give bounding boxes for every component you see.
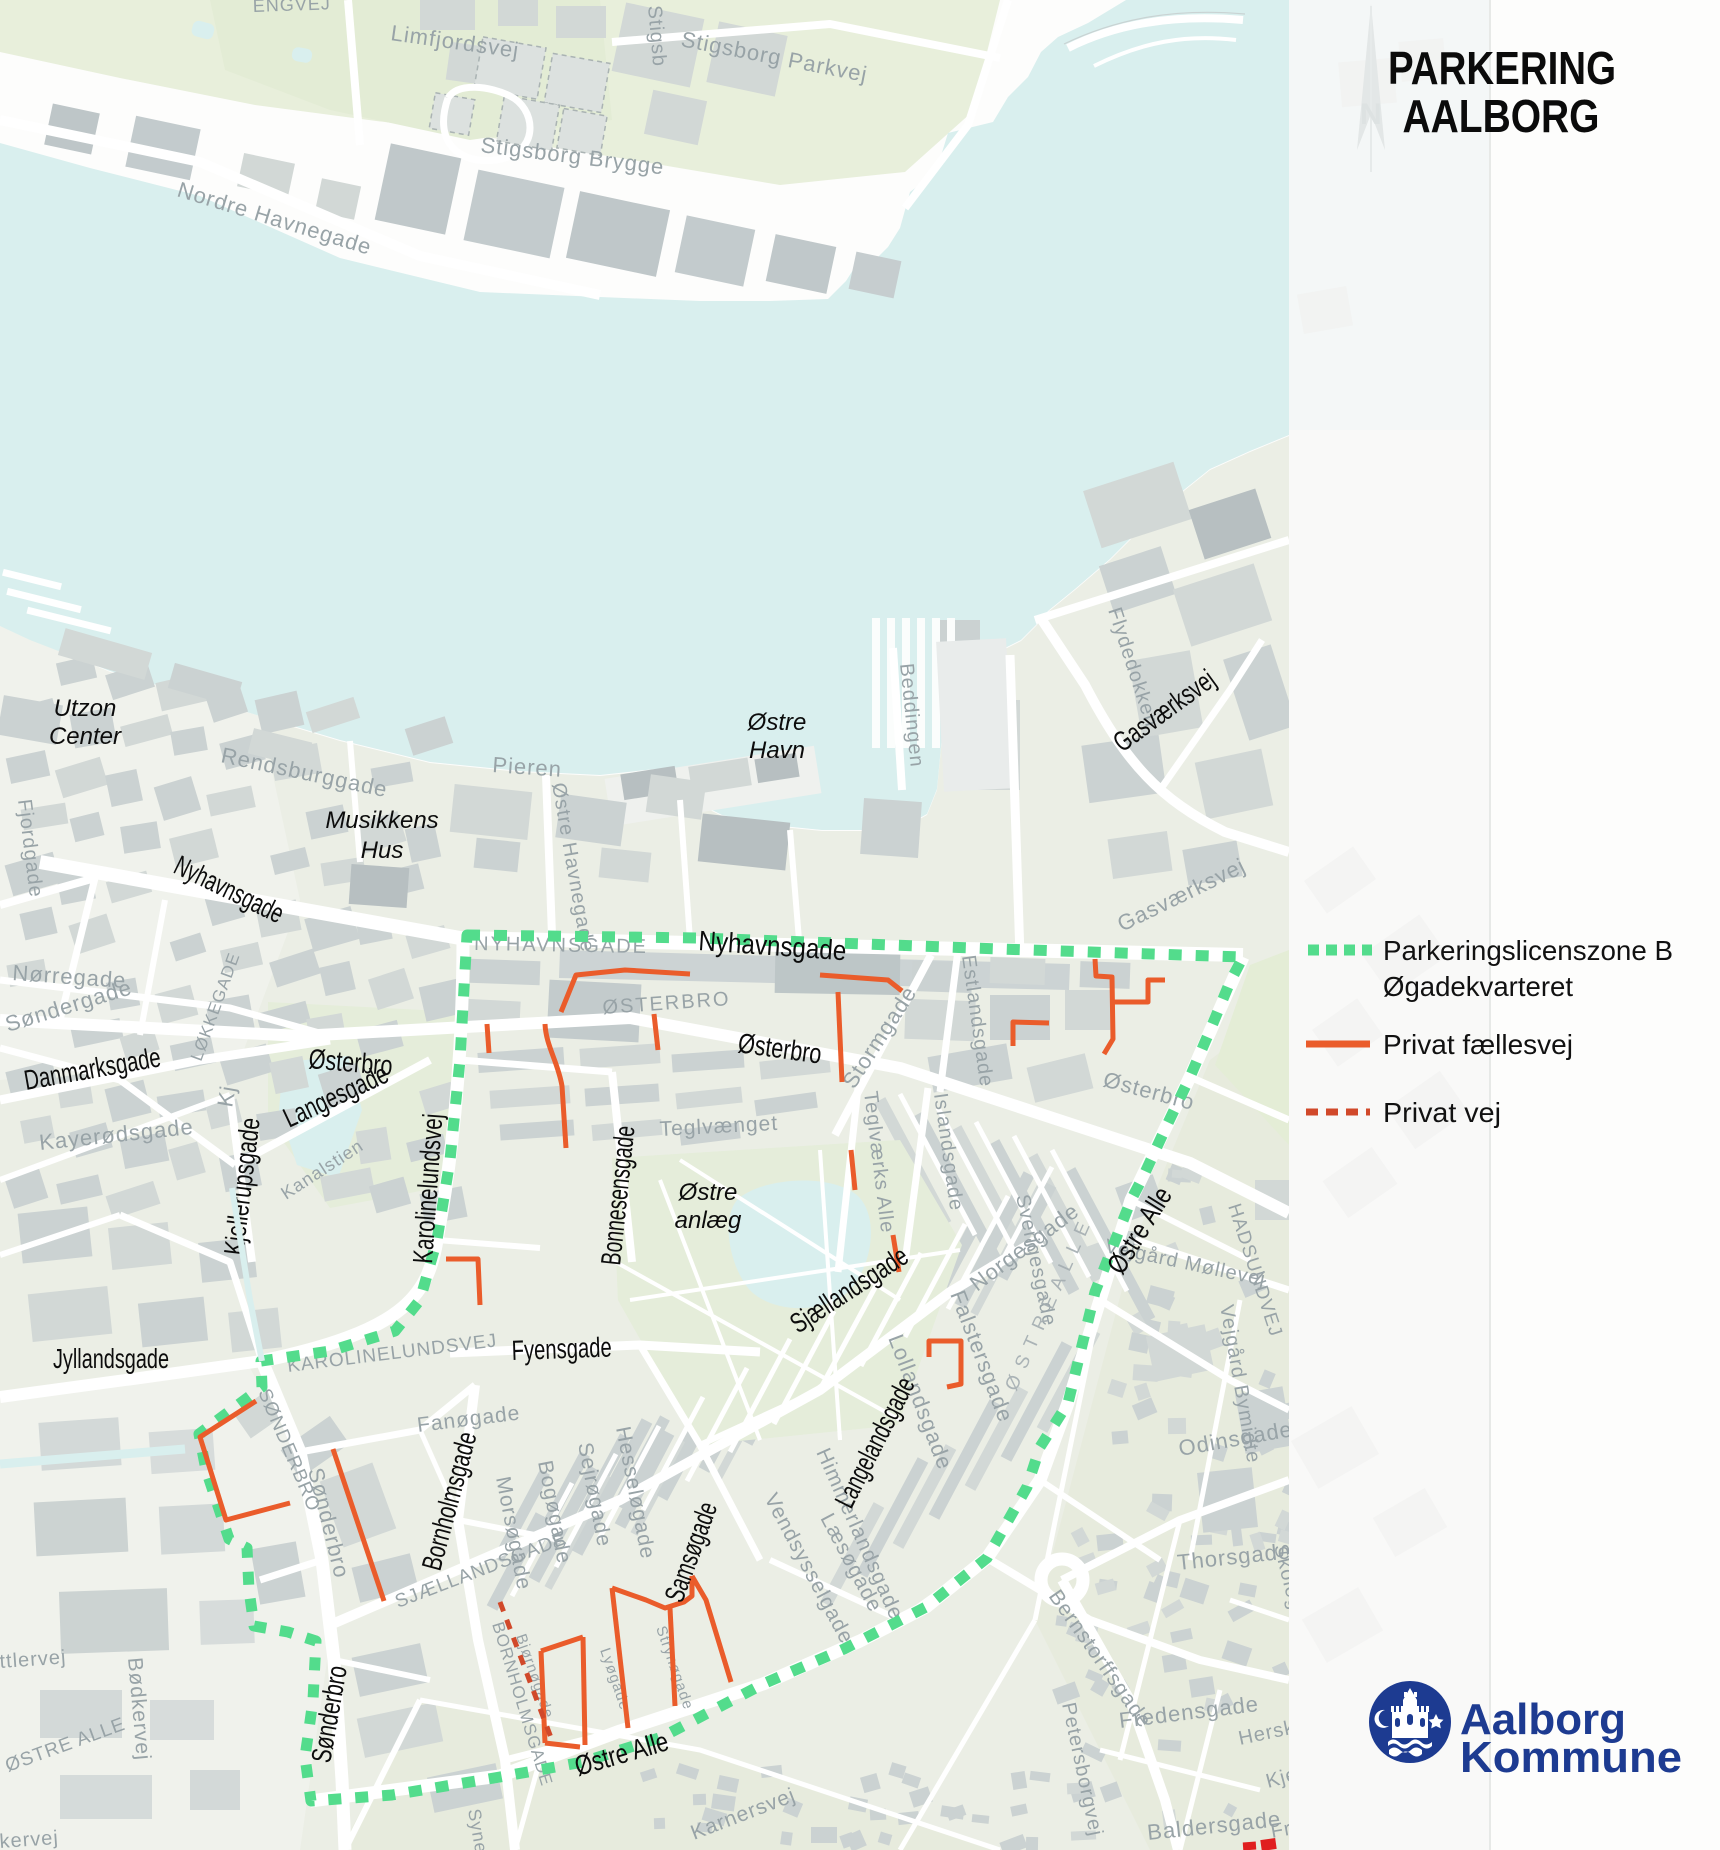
svg-text:Kj: Kj <box>212 1083 240 1109</box>
svg-text:kervej: kervej <box>0 1827 60 1850</box>
svg-text:anlæg: anlæg <box>675 1207 742 1234</box>
svg-text:Utzon: Utzon <box>54 695 117 722</box>
svg-text:ttlervej: ttlervej <box>0 1646 67 1673</box>
svg-text:Fyensgade: Fyensgade <box>511 1332 612 1366</box>
svg-text:ENGVEJ: ENGVEJ <box>252 0 331 16</box>
svg-text:Havn: Havn <box>749 737 805 764</box>
svg-text:Østre: Østre <box>678 1179 738 1206</box>
svg-text:AALBORG: AALBORG <box>1403 90 1600 142</box>
svg-text:N: N <box>1360 98 1382 131</box>
svg-text:PARKERING: PARKERING <box>1388 42 1616 94</box>
svg-text:Jyllandsgade: Jyllandsgade <box>53 1343 169 1374</box>
svg-text:Privat fællesvej: Privat fællesvej <box>1383 1029 1573 1060</box>
svg-text:Hus: Hus <box>361 837 404 864</box>
svg-text:Parkeringslicenszone B: Parkeringslicenszone B <box>1383 935 1673 966</box>
svg-text:Musikkens: Musikkens <box>325 807 438 834</box>
svg-text:Østre: Østre <box>747 709 807 736</box>
svg-text:Center: Center <box>49 723 122 750</box>
svg-text:Pieren: Pieren <box>492 752 563 782</box>
svg-text:Kommune: Kommune <box>1460 1733 1682 1782</box>
svg-text:Øgadekvarteret: Øgadekvarteret <box>1383 971 1573 1002</box>
svg-text:Privat vej: Privat vej <box>1383 1097 1501 1128</box>
